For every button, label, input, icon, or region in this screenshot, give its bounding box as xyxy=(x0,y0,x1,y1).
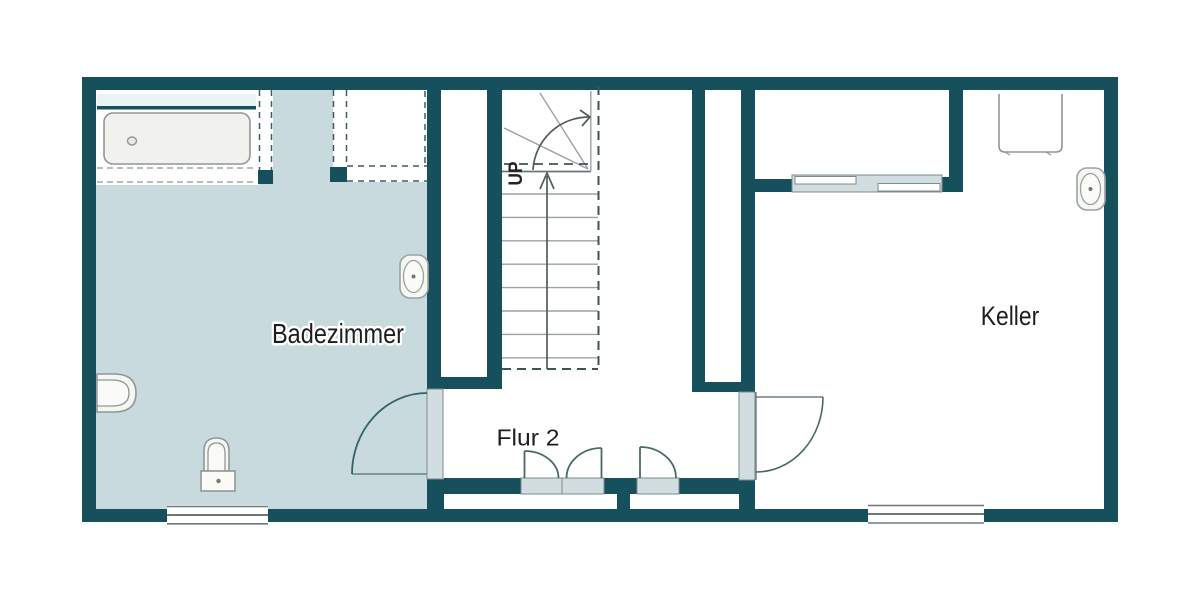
svg-text:Keller: Keller xyxy=(981,301,1039,331)
svg-text:Badezimmer: Badezimmer xyxy=(272,318,404,349)
svg-text:Flur 2: Flur 2 xyxy=(497,425,560,451)
svg-text:UP: UP xyxy=(506,161,527,185)
